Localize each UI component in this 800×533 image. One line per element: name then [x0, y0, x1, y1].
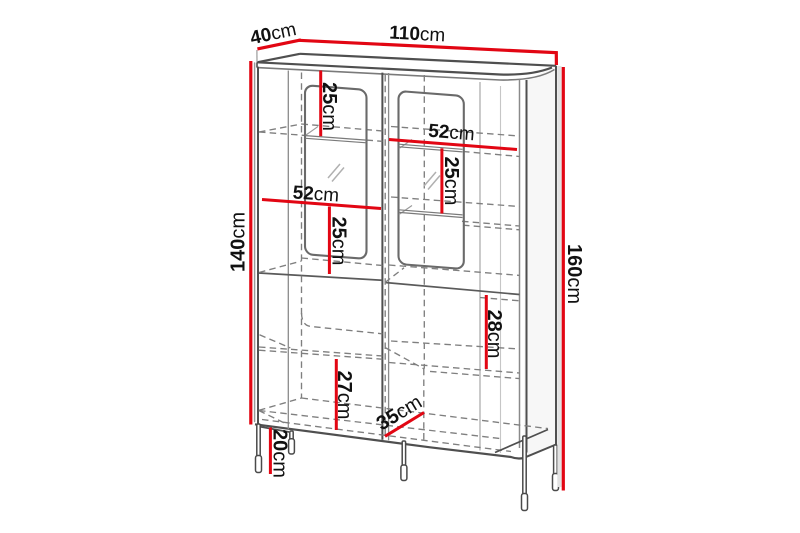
svg-text:110cm: 110cm [389, 23, 446, 47]
svg-text:140cm: 140cm [228, 212, 250, 272]
svg-text:28cm: 28cm [483, 310, 505, 359]
svg-text:20cm: 20cm [268, 429, 290, 478]
svg-text:25cm: 25cm [328, 217, 350, 266]
svg-text:25cm: 25cm [318, 82, 340, 131]
svg-text:160cm: 160cm [563, 244, 585, 304]
svg-text:52cm: 52cm [292, 182, 340, 206]
svg-text:27cm: 27cm [333, 371, 355, 420]
svg-text:25cm: 25cm [440, 157, 462, 206]
svg-text:52cm: 52cm [427, 121, 475, 146]
